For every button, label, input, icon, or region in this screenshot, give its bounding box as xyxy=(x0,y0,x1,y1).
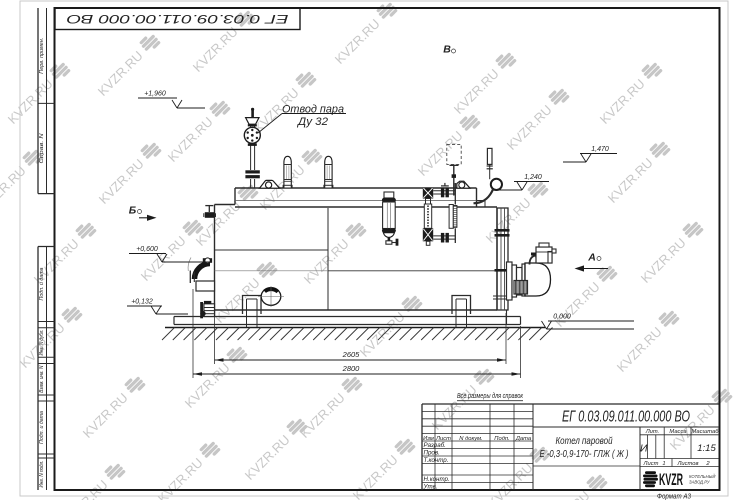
svg-text:Утв.: Утв. xyxy=(423,484,438,491)
svg-text:Масштаб: Масштаб xyxy=(691,429,719,435)
svg-text:Б: Б xyxy=(129,205,137,217)
svg-text:А: А xyxy=(587,252,596,264)
svg-text:KVZR: KVZR xyxy=(659,471,683,489)
svg-text:Е -0,3-0,9-170- ГЛЖ ( Ж ): Е -0,3-0,9-170- ГЛЖ ( Ж ) xyxy=(540,448,629,460)
svg-text:Все размеры для справок: Все размеры для справок xyxy=(457,391,523,400)
svg-text:Лист: Лист xyxy=(435,436,451,442)
svg-text:Подп. и дата: Подп. и дата xyxy=(39,267,45,300)
svg-text:ЕГ 0.03.09.011.00.000 ВО: ЕГ 0.03.09.011.00.000 ВО xyxy=(66,12,288,24)
svg-text:1:15: 1:15 xyxy=(697,443,716,454)
svg-text:Подп. и дата: Подп. и дата xyxy=(39,411,45,444)
svg-text:2800: 2800 xyxy=(342,364,361,373)
svg-text:1,470: 1,470 xyxy=(591,146,609,153)
svg-text:В: В xyxy=(443,44,451,56)
svg-text:1,240: 1,240 xyxy=(524,174,542,181)
svg-text:Формат А3: Формат А3 xyxy=(657,492,692,500)
svg-text:1: 1 xyxy=(662,461,665,467)
svg-text:Инв. N подл.: Инв. N подл. xyxy=(39,461,45,488)
svg-text:Лист: Лист xyxy=(643,461,659,467)
svg-text:Изм: Изм xyxy=(423,436,434,442)
svg-text:КОТЕЛЬНЫЙ: КОТЕЛЬНЫЙ xyxy=(689,474,715,479)
svg-text:+1,960: +1,960 xyxy=(144,91,166,98)
svg-text:ЗАВОД.РУ: ЗАВОД.РУ xyxy=(689,480,711,485)
svg-text:Дата: Дата xyxy=(515,436,532,442)
svg-text:Отвод пара: Отвод пара xyxy=(282,104,344,116)
svg-text:+0,600: +0,600 xyxy=(136,246,158,253)
svg-text:Т.контр.: Т.контр. xyxy=(424,457,449,464)
svg-text:Листов: Листов xyxy=(676,461,698,467)
svg-text:+0,132: +0,132 xyxy=(131,299,153,306)
svg-text:Масса: Масса xyxy=(669,429,687,435)
svg-text:Взам. инв. N: Взам. инв. N xyxy=(39,365,45,392)
svg-text:0,000: 0,000 xyxy=(553,314,571,321)
svg-text:Н.контр.: Н.контр. xyxy=(424,476,450,483)
svg-text:Перв. примен.: Перв. примен. xyxy=(39,38,45,74)
svg-text:Лит.: Лит. xyxy=(645,429,660,435)
svg-text:ЕГ 0.03.09.011.00.000 ВО: ЕГ 0.03.09.011.00.000 ВО xyxy=(562,409,690,426)
svg-text:N докум.: N докум. xyxy=(459,436,482,442)
svg-text:Инв. N дубл.: Инв. N дубл. xyxy=(39,330,45,356)
svg-text:Справ. N: Справ. N xyxy=(39,133,45,163)
svg-text:Котел паровой: Котел паровой xyxy=(556,435,613,447)
svg-text:И: И xyxy=(640,443,648,455)
svg-text:Ду 32: Ду 32 xyxy=(296,116,328,128)
svg-text:Разраб.: Разраб. xyxy=(424,442,446,449)
svg-text:Подп.: Подп. xyxy=(494,436,509,442)
svg-text:Пров.: Пров. xyxy=(424,450,440,457)
svg-text:2605: 2605 xyxy=(342,350,361,359)
